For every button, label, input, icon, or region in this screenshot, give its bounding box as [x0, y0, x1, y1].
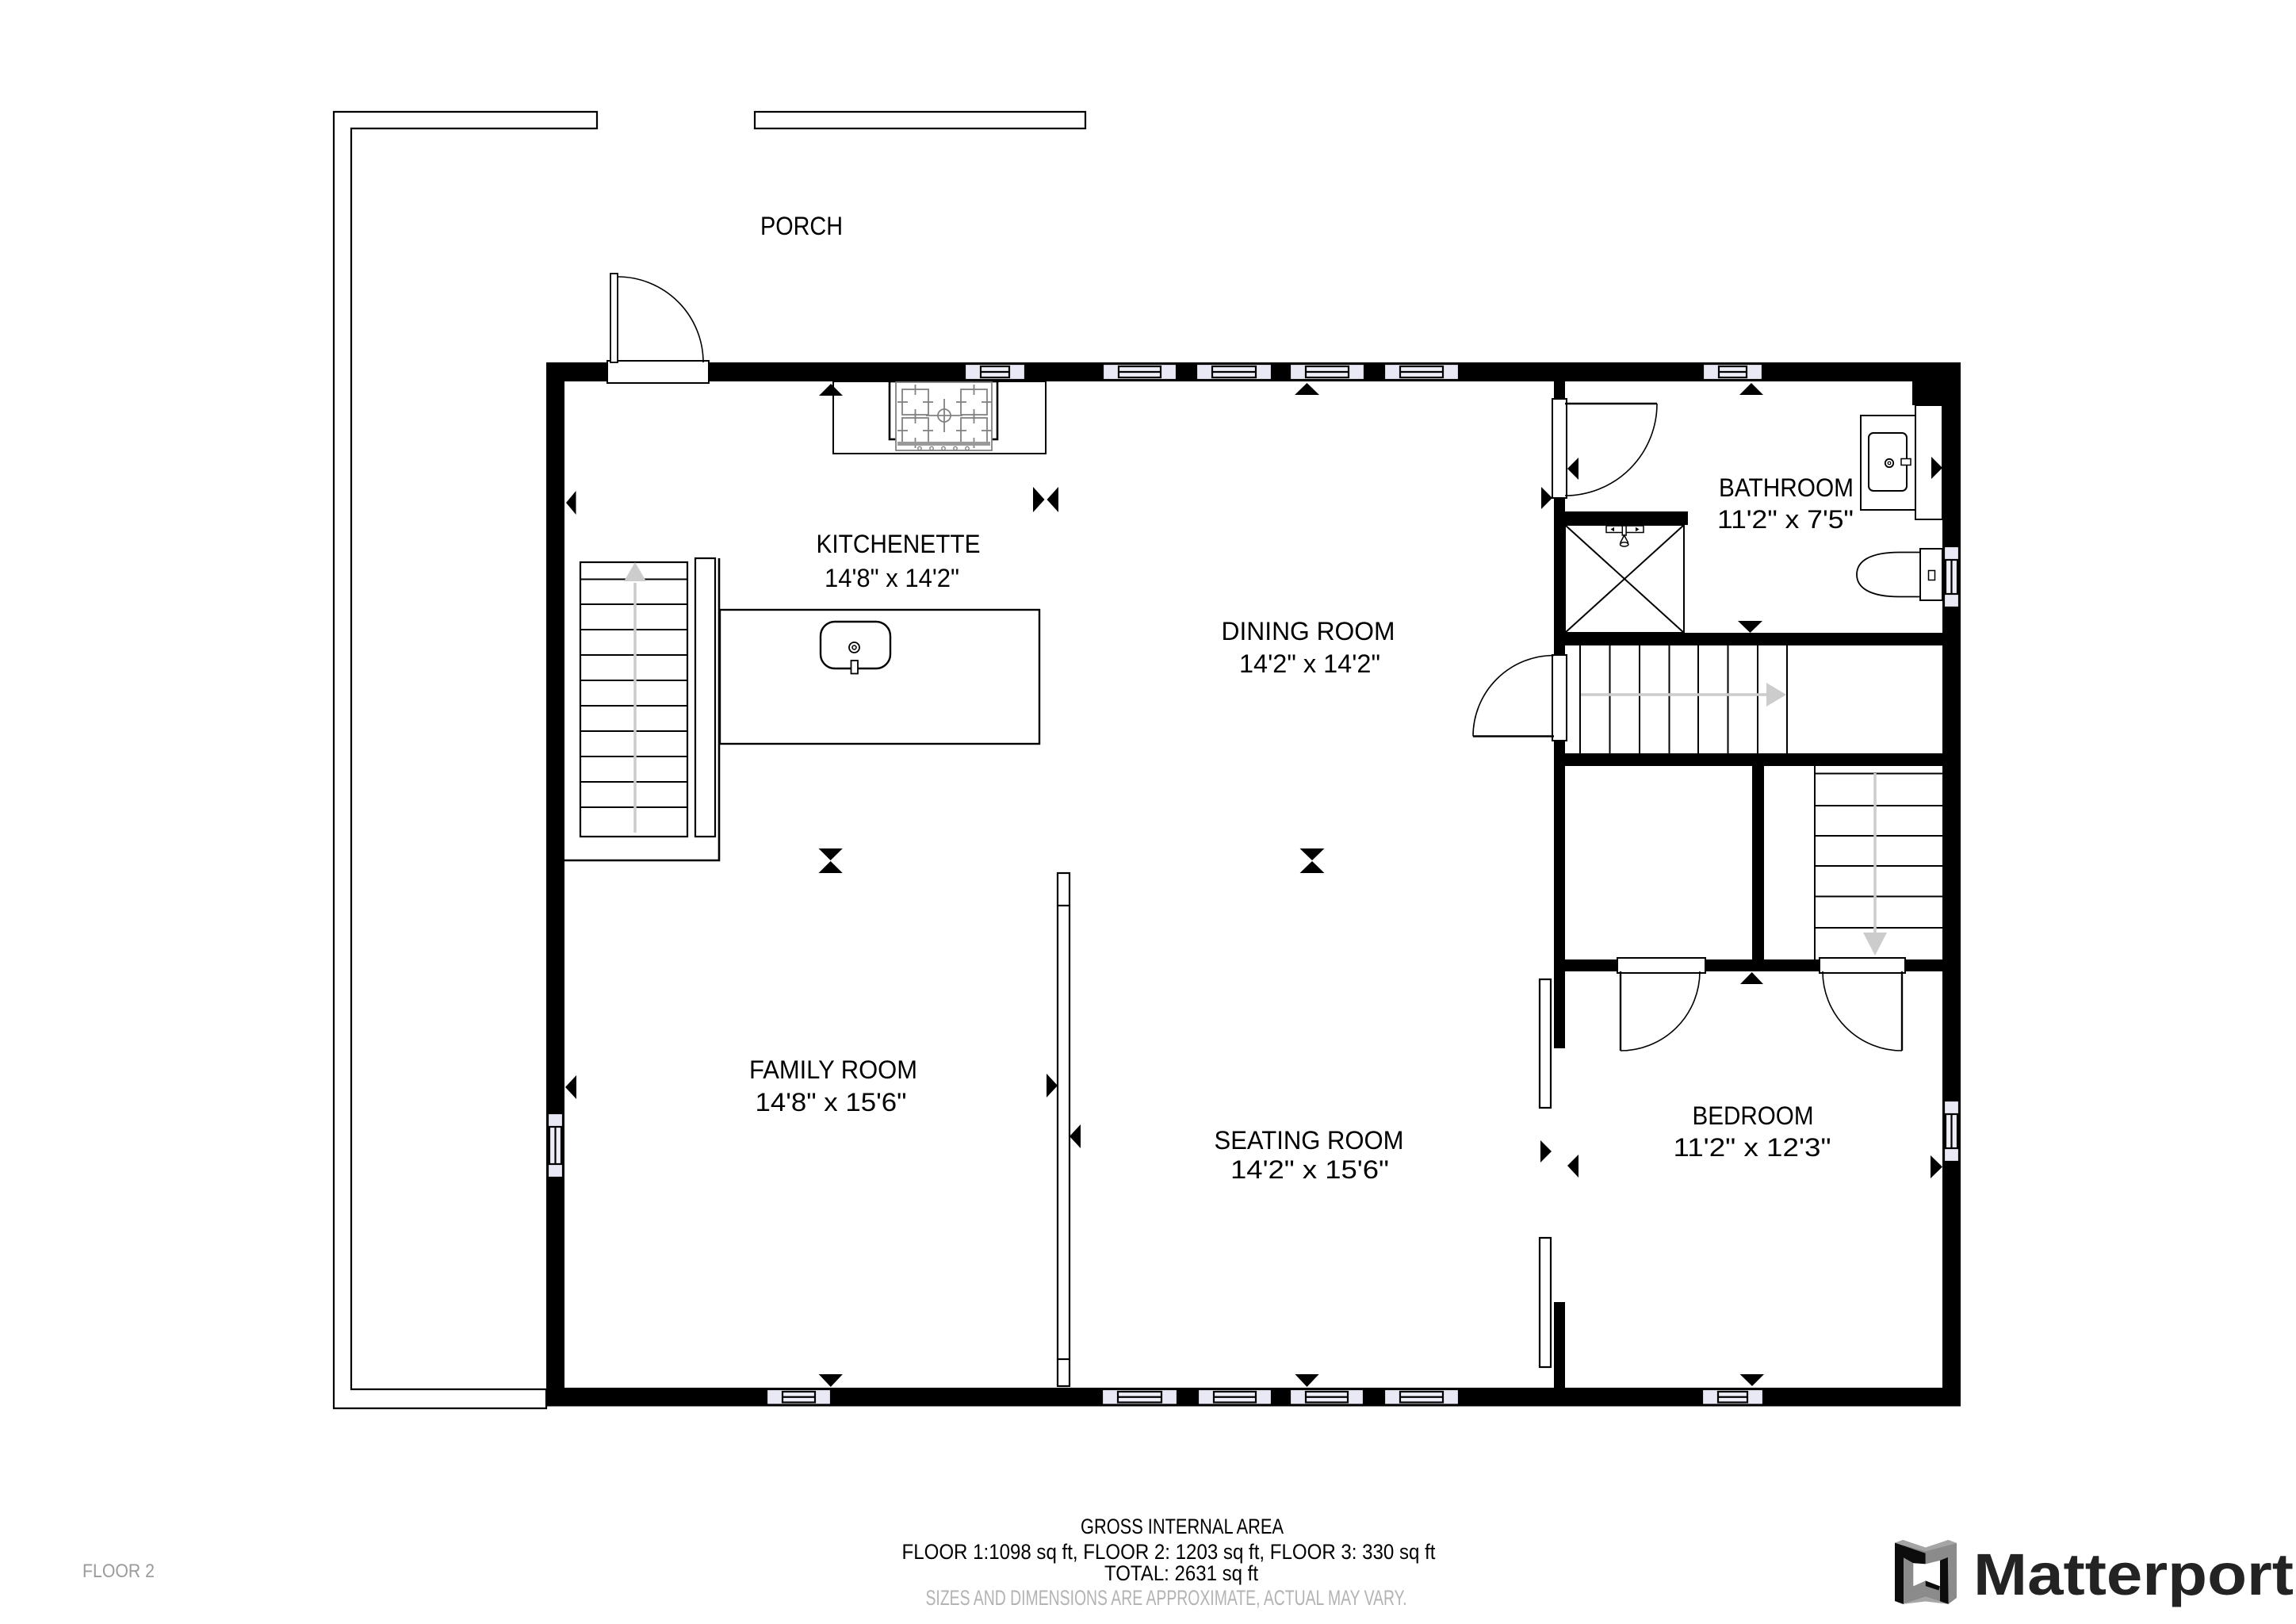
svg-text:SEATING ROOM: SEATING ROOM [1215, 1126, 1404, 1155]
svg-text:GROSS INTERNAL AREA: GROSS INTERNAL AREA [1081, 1515, 1284, 1538]
svg-text:PORCH: PORCH [760, 212, 843, 240]
svg-text:11'2" x 7'5": 11'2" x 7'5" [1717, 505, 1854, 534]
svg-text:BATHROOM: BATHROOM [1719, 473, 1854, 502]
svg-text:SIZES AND DIMENSIONS ARE APPRO: SIZES AND DIMENSIONS ARE APPROXIMATE, AC… [926, 1586, 1407, 1610]
svg-text:TOTAL: 2631 sq ft: TOTAL: 2631 sq ft [1104, 1561, 1258, 1585]
svg-text:FLOOR 2: FLOOR 2 [82, 1561, 155, 1582]
svg-text:14'2" x 14'2": 14'2" x 14'2" [1239, 649, 1380, 678]
svg-text:11'2" x 12'3": 11'2" x 12'3" [1674, 1133, 1831, 1162]
svg-text:Matterport: Matterport [1973, 1542, 2294, 1607]
svg-text:DINING ROOM: DINING ROOM [1222, 617, 1395, 645]
svg-text:14'8" x 15'6": 14'8" x 15'6" [756, 1088, 907, 1116]
svg-text:FLOOR 1:1098 sq ft, FLOOR 2: 1: FLOOR 1:1098 sq ft, FLOOR 2: 1203 sq ft,… [902, 1540, 1436, 1564]
svg-text:FAMILY ROOM: FAMILY ROOM [749, 1055, 917, 1084]
svg-text:BEDROOM: BEDROOM [1693, 1101, 1814, 1130]
svg-text:14'2" x 15'6": 14'2" x 15'6" [1230, 1155, 1389, 1184]
svg-text:KITCHENETTE: KITCHENETTE [817, 530, 981, 558]
svg-text:14'8" x 14'2": 14'8" x 14'2" [825, 564, 959, 592]
